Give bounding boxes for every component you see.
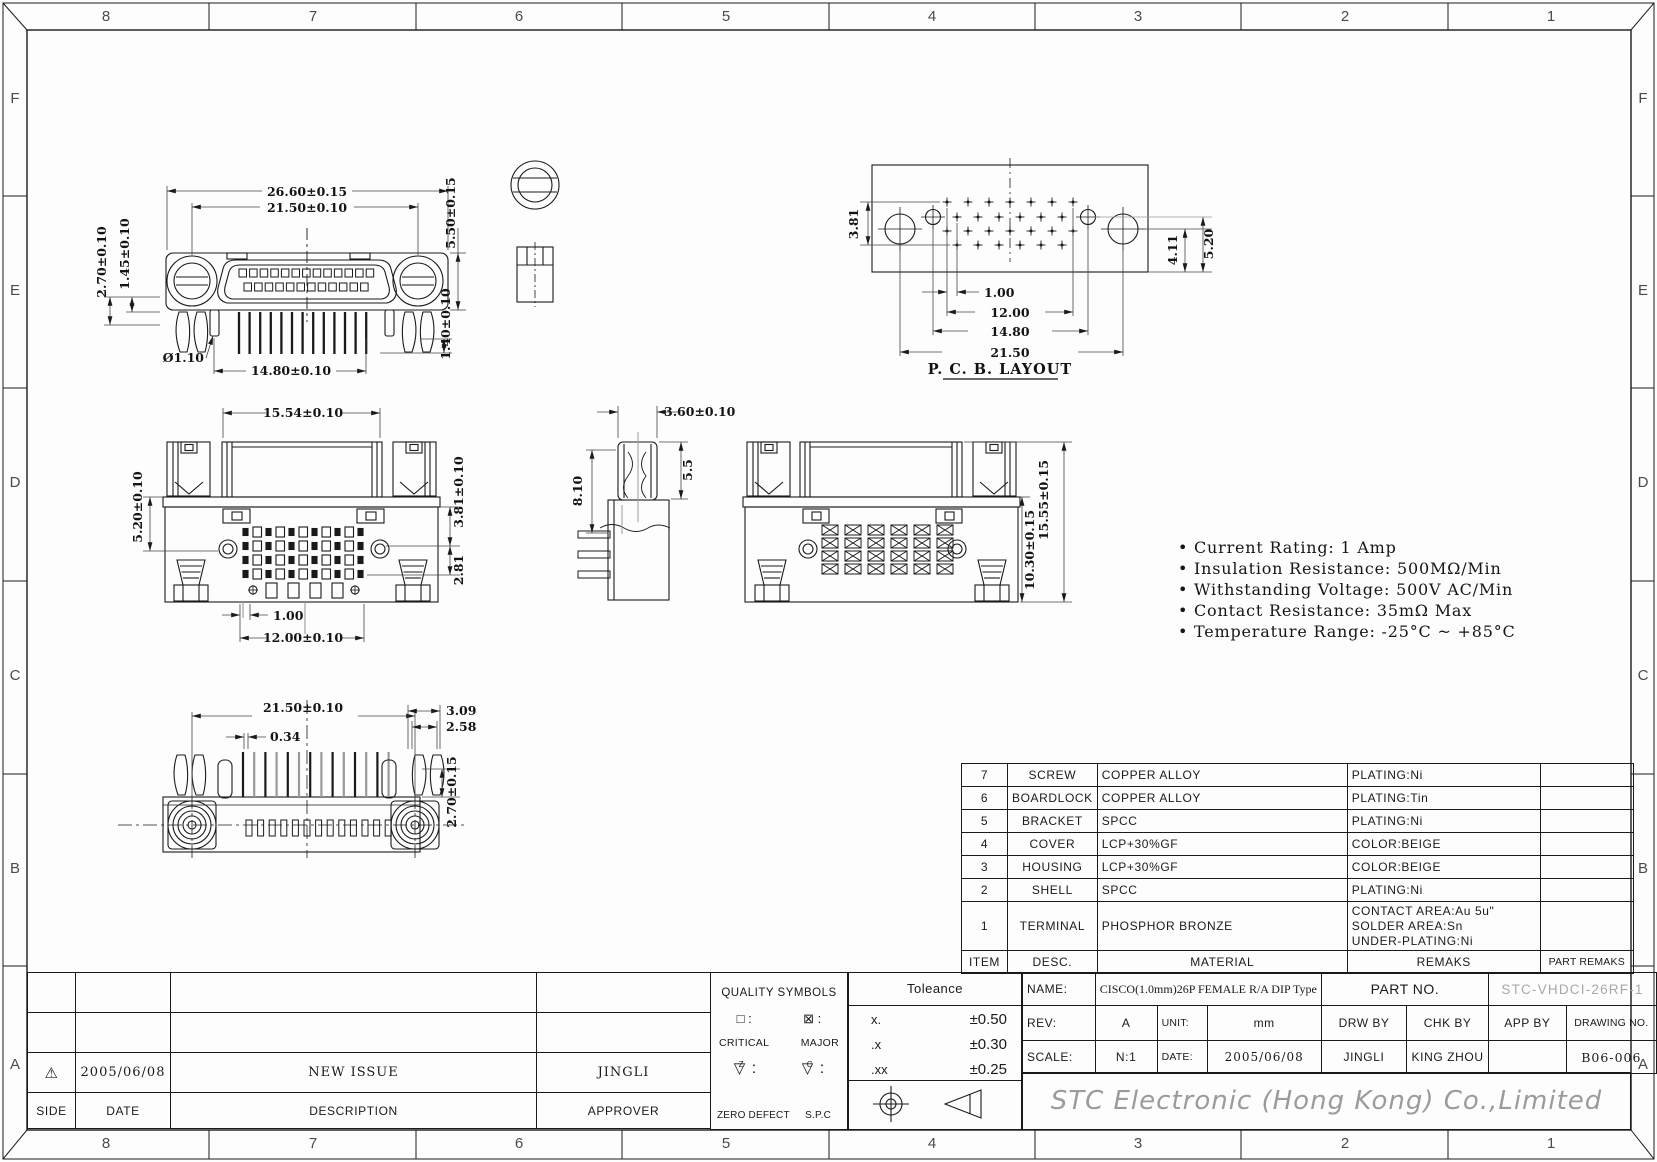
dim-label: 21.50	[990, 345, 1029, 360]
bullet-icon: •	[1178, 538, 1194, 557]
quality-symbols-panel: QUALITY SYMBOLS □ : ⊠ : CRITICAL MAJOR ▽…	[710, 972, 848, 1130]
grid-col-label: 1	[1531, 8, 1571, 25]
grid-row-label: E	[1632, 282, 1654, 299]
grid-row-label: C	[1632, 667, 1654, 684]
col-header-side: SIDE	[28, 1093, 76, 1129]
table-header-row: ITEMDESC.MATERIALREMAKSPART REMAKS	[962, 951, 1634, 974]
front-view	[166, 228, 448, 354]
part-remarks: PLATING:Tin	[1347, 787, 1540, 810]
table-row: 3HOUSINGLCP+30%GFCOLOR:BEIGE	[962, 856, 1634, 879]
quality-title: QUALITY SYMBOLS	[711, 987, 847, 999]
rev-date	[76, 1013, 171, 1053]
part-part-remarks	[1540, 787, 1633, 810]
note-text: Temperature Range: -25°C ~ +85°C	[1194, 622, 1516, 641]
table-row: 2SHELLSPCCPLATING:Ni	[962, 879, 1634, 902]
company-name: STC Electronic (Hong Kong) Co.,Limited	[1022, 1072, 1631, 1130]
part-material: SPCC	[1097, 810, 1347, 833]
bullet-icon: •	[1178, 559, 1194, 578]
chk-by-label: CHK BY	[1407, 1006, 1489, 1041]
pcb-layout-view	[872, 158, 1148, 272]
part-name-value: CISCO(1.0mm)26P FEMALE R/A DIP Type	[1095, 973, 1321, 1006]
grid-col-label: 4	[912, 8, 952, 25]
bullet-icon: •	[1178, 580, 1194, 599]
app-by-label: APP BY	[1489, 1006, 1567, 1041]
revision-table: ⚠ 2005/06/08 NEW ISSUE JINGLI SIDE DATE …	[27, 972, 711, 1129]
grid-row-label: D	[1632, 474, 1654, 491]
electrical-notes: •Current Rating: 1 Amp •Insulation Resis…	[1178, 538, 1516, 643]
grid-col-label: 3	[1118, 8, 1158, 25]
grid-col-label: 5	[706, 1135, 746, 1152]
major-symbol-icon: ⊠ :	[803, 1011, 821, 1027]
side-view-dim-labels: 3.60±0.10 8.10 5.5	[570, 404, 736, 506]
dim-label: 5.20±0.10	[130, 471, 145, 543]
dim-label: 10.30±0.15	[1022, 510, 1037, 590]
part-part-remarks	[1540, 856, 1633, 879]
part-material: PHOSPHOR BRONZE	[1097, 902, 1347, 951]
grid-col-label: 8	[86, 8, 126, 25]
part-item: 3	[962, 856, 1008, 879]
assembly-front-dim-labels: 15.54±0.10 5.20±0.10 3.81±0.10 2.81 1.00…	[130, 405, 466, 645]
dim-label: 3.09	[446, 703, 476, 718]
title-block-row: NAME: CISCO(1.0mm)26P FEMALE R/A DIP Typ…	[1023, 973, 1657, 1006]
part-desc: BOARDLOCK	[1008, 787, 1098, 810]
revision-triangle-icon: ⚠	[28, 1053, 76, 1093]
unit-label: UNIT:	[1157, 1006, 1207, 1041]
note-line: •Temperature Range: -25°C ~ +85°C	[1178, 622, 1516, 643]
rev-description	[171, 1013, 537, 1053]
part-part-remarks	[1540, 833, 1633, 856]
tolerance-panel: Toleance x.±0.50 .x±0.30 .xx±0.25	[848, 972, 1022, 1130]
part-remarks: PLATING:Ni	[1347, 879, 1540, 902]
scale-label: SCALE:	[1023, 1041, 1096, 1074]
grid-col-label: 1	[1531, 1135, 1571, 1152]
grid-row-label: B	[1632, 860, 1654, 877]
rev-description: NEW ISSUE	[171, 1053, 537, 1093]
finish-symbols-row: ▽Z: ▽C:	[711, 1059, 847, 1078]
assembly-rear-dim-labels: 10.30±0.15 15.55±0.15	[1022, 460, 1051, 590]
part-no-label: PART NO.	[1321, 973, 1488, 1006]
tolerance-title: Toleance	[849, 973, 1021, 1006]
col-header-approver: APPROVER	[537, 1093, 711, 1129]
grid-row-label: F	[4, 90, 26, 107]
assembly-rear-view	[743, 442, 1020, 602]
note-line: •Insulation Resistance: 500MΩ/Min	[1178, 559, 1516, 580]
grid-row-label: D	[4, 474, 26, 491]
rev-description	[171, 973, 537, 1013]
rev-date: 2005/06/08	[76, 1053, 171, 1093]
part-remarks: PLATING:Ni	[1347, 764, 1540, 787]
part-remarks: CONTACT AREA:Au 5u"SOLDER AREA:SnUNDER-P…	[1347, 902, 1540, 951]
dim-label: 2.70±0.15	[444, 756, 459, 827]
dim-label: 21.50±0.10	[267, 200, 347, 215]
part-no-value: STC-VHDCI-26RF-1	[1489, 973, 1657, 1006]
part-item: 6	[962, 787, 1008, 810]
dim-label: 2.70±0.10	[94, 226, 109, 298]
part-remarks: PLATING:Ni	[1347, 810, 1540, 833]
bullet-icon: •	[1178, 622, 1194, 641]
dim-label: 5.50±0.15	[443, 177, 458, 248]
tolerance-value: ±0.25	[970, 1061, 1007, 1078]
part-desc: SCREW	[1008, 764, 1098, 787]
col-header-desc: DESC.	[1008, 951, 1098, 974]
grid-row-label: F	[1632, 90, 1654, 107]
dim-label: 15.54±0.10	[263, 405, 343, 420]
table-row: 6BOARDLOCKCOPPER ALLOYPLATING:Tin	[962, 787, 1634, 810]
dim-label: 14.80±0.10	[251, 363, 331, 378]
dim-label: 21.50±0.10	[263, 700, 343, 715]
revision-row: ⚠ 2005/06/08 NEW ISSUE JINGLI	[28, 1053, 711, 1093]
bottom-view	[118, 700, 468, 858]
note-line: •Current Rating: 1 Amp	[1178, 538, 1516, 559]
drawing-no-value: B06-006	[1566, 1041, 1656, 1074]
dim-label: 15.55±0.15	[1036, 460, 1051, 540]
col-header-item: ITEM	[962, 951, 1008, 974]
part-desc: COVER	[1008, 833, 1098, 856]
tolerance-row: x.±0.50	[849, 1006, 1021, 1031]
part-remarks: COLOR:BEIGE	[1347, 856, 1540, 879]
part-item: 7	[962, 764, 1008, 787]
col-header-part-remarks: PART REMAKS	[1540, 951, 1633, 974]
title-block-row: REV: A UNIT: mm DRW BY CHK BY APP BY DRA…	[1023, 1006, 1657, 1041]
part-part-remarks	[1540, 879, 1633, 902]
part-part-remarks	[1540, 764, 1633, 787]
assembly-front-view	[163, 442, 440, 634]
drw-by-label: DRW BY	[1321, 1006, 1406, 1041]
pcb-layout-dimensions	[860, 202, 1212, 356]
dim-label: 12.00	[990, 305, 1029, 320]
rev-value: A	[1095, 1006, 1157, 1041]
rev-symbol	[28, 1013, 76, 1053]
part-part-remarks	[1540, 902, 1633, 951]
dim-label: 1.00	[273, 608, 304, 623]
grid-col-label: 7	[293, 1135, 333, 1152]
rev-approver	[537, 973, 711, 1013]
part-desc: SHELL	[1008, 879, 1098, 902]
rev-approver	[537, 1013, 711, 1053]
tolerance-value: ±0.50	[970, 1011, 1007, 1028]
note-text: Insulation Resistance: 500MΩ/Min	[1194, 559, 1502, 578]
part-item: 2	[962, 879, 1008, 902]
app-by-value	[1489, 1041, 1567, 1074]
dim-label: 5.5	[680, 459, 695, 481]
bullet-icon: •	[1178, 601, 1194, 620]
grid-col-label: 7	[293, 8, 333, 25]
rev-date	[76, 973, 171, 1013]
grid-col-label: 8	[86, 1135, 126, 1152]
remark-line: UNDER-PLATING:Ni	[1352, 934, 1536, 949]
part-desc: TERMINAL	[1008, 902, 1098, 951]
dim-label: Ø1.10	[163, 350, 205, 365]
title-block: NAME: CISCO(1.0mm)26P FEMALE R/A DIP Typ…	[1022, 972, 1657, 1074]
note-text: Contact Resistance: 35mΩ Max	[1194, 601, 1472, 620]
title-block-row: SCALE: N:1 DATE: 2005/06/08 JINGLI KING …	[1023, 1041, 1657, 1074]
part-part-remarks	[1540, 810, 1633, 833]
part-item: 5	[962, 810, 1008, 833]
dim-label: 26.60±0.15	[267, 184, 347, 199]
part-item: 4	[962, 833, 1008, 856]
spc-symbol-icon: ▽C:	[802, 1059, 824, 1078]
note-text: Withstanding Voltage: 500V AC/Min	[1194, 580, 1513, 599]
quality-symbols-row: □ : ⊠ :	[711, 1011, 847, 1027]
grid-row-label: E	[4, 282, 26, 299]
part-desc: HOUSING	[1008, 856, 1098, 879]
pcb-layout-title: P. C. B. LAYOUT	[928, 361, 1072, 378]
dim-label: 8.10	[570, 475, 585, 506]
spc-label: S.P.C	[805, 1110, 831, 1121]
dim-label: 2.81	[451, 555, 466, 585]
rev-symbol	[28, 973, 76, 1013]
tolerance-row: .xx±0.25	[849, 1056, 1021, 1081]
tolerance-label: .xx	[871, 1062, 888, 1077]
table-row: 4COVERLCP+30%GFCOLOR:BEIGE	[962, 833, 1634, 856]
tolerance-row: .x±0.30	[849, 1031, 1021, 1056]
zero-defect-label: ZERO DEFECT	[717, 1110, 790, 1121]
rev-approver: JINGLI	[537, 1053, 711, 1093]
table-row: 1TERMINALPHOSPHOR BRONZE CONTACT AREA:Au…	[962, 902, 1634, 951]
table-row: 5BRACKETSPCCPLATING:Ni	[962, 810, 1634, 833]
part-desc: BRACKET	[1008, 810, 1098, 833]
revision-header-row: SIDE DATE DESCRIPTION APPROVER	[28, 1093, 711, 1129]
parts-list-table: 7SCREWCOPPER ALLOYPLATING:Ni 6BOARDLOCKC…	[961, 763, 1634, 974]
grid-col-label: 5	[706, 8, 746, 25]
chk-by-value: KING ZHOU	[1407, 1041, 1489, 1074]
note-line: •Contact Resistance: 35mΩ Max	[1178, 601, 1516, 622]
drw-by-value: JINGLI	[1321, 1041, 1406, 1074]
screw-detail-view	[511, 161, 559, 307]
grid-col-label: 6	[499, 8, 539, 25]
part-material: LCP+30%GF	[1097, 856, 1347, 879]
col-header-description: DESCRIPTION	[171, 1093, 537, 1129]
tolerance-label: x.	[871, 1012, 881, 1027]
critical-symbol-icon: □ :	[737, 1011, 752, 1027]
dim-label: 3.81	[846, 209, 861, 239]
scale-value: N:1	[1095, 1041, 1157, 1074]
part-material: LCP+30%GF	[1097, 833, 1347, 856]
side-view-dimensions	[586, 406, 688, 533]
dim-label: 0.34	[270, 729, 301, 744]
engineering-drawing-sheet: 26.60±0.15 21.50±0.10 2.70±0.10 1.45±0.1…	[0, 0, 1657, 1162]
remark-line: SOLDER AREA:Sn	[1352, 919, 1536, 934]
dim-label: 1.45±0.10	[117, 218, 132, 290]
dim-label: 4.11	[1165, 235, 1180, 265]
grid-col-label: 6	[499, 1135, 539, 1152]
date-label: DATE:	[1157, 1041, 1207, 1074]
note-text: Current Rating: 1 Amp	[1194, 538, 1397, 557]
grid-row-label: A	[4, 1056, 26, 1073]
grid-col-label: 4	[912, 1135, 952, 1152]
rev-label: REV:	[1023, 1006, 1096, 1041]
revision-row	[28, 1013, 711, 1053]
col-header-material: MATERIAL	[1097, 951, 1347, 974]
part-material: SPCC	[1097, 879, 1347, 902]
front-view-dim-labels: 26.60±0.15 21.50±0.10 2.70±0.10 1.45±0.1…	[94, 177, 458, 378]
quality-labels-row: CRITICAL MAJOR	[711, 1037, 847, 1049]
tolerance-label: .x	[871, 1037, 881, 1052]
bottom-view-dim-labels: 21.50±0.10 0.34 3.09 2.58 2.70±0.15	[263, 700, 477, 828]
part-material: COPPER ALLOY	[1097, 764, 1347, 787]
col-header-date: DATE	[76, 1093, 171, 1129]
note-line: •Withstanding Voltage: 500V AC/Min	[1178, 580, 1516, 601]
date-value: 2005/06/08	[1207, 1041, 1321, 1074]
name-label: NAME:	[1023, 973, 1096, 1006]
critical-label: CRITICAL	[719, 1037, 769, 1049]
revision-row	[28, 973, 711, 1013]
part-material: COPPER ALLOY	[1097, 787, 1347, 810]
remark-line: CONTACT AREA:Au 5u"	[1352, 904, 1536, 919]
part-item: 1	[962, 902, 1008, 951]
dim-label: 2.58	[446, 719, 477, 734]
dim-label: 3.81±0.10	[451, 456, 466, 528]
unit-value: mm	[1207, 1006, 1321, 1041]
grid-row-label: B	[4, 860, 26, 877]
table-row: 7SCREWCOPPER ALLOYPLATING:Ni	[962, 764, 1634, 787]
zero-defect-symbol-icon: ▽Z:	[734, 1059, 756, 1078]
dim-label: 12.00±0.10	[263, 630, 343, 645]
grid-col-label: 2	[1325, 8, 1365, 25]
col-header-remarks: REMAKS	[1347, 951, 1540, 974]
grid-col-label: 2	[1325, 1135, 1365, 1152]
dim-label: 1.00	[984, 285, 1015, 300]
drawing-no-label: DRAWING NO.	[1566, 1006, 1656, 1041]
assembly-front-dimensions	[143, 408, 460, 642]
tolerance-value: ±0.30	[970, 1036, 1007, 1053]
dim-label: 5.20	[1201, 228, 1216, 259]
part-remarks: COLOR:BEIGE	[1347, 833, 1540, 856]
projection-angle-icon	[849, 1081, 1021, 1127]
dim-label: 3.60±0.10	[664, 404, 736, 419]
dim-label: 14.80	[990, 324, 1029, 339]
major-label: MAJOR	[801, 1037, 839, 1049]
grid-col-label: 3	[1118, 1135, 1158, 1152]
grid-row-label: C	[4, 667, 26, 684]
quality-bottom-labels: ZERO DEFECT S.P.C	[711, 1110, 837, 1121]
dim-label: 1.40±0.10	[438, 288, 453, 360]
projection-symbols	[849, 1080, 1021, 1129]
